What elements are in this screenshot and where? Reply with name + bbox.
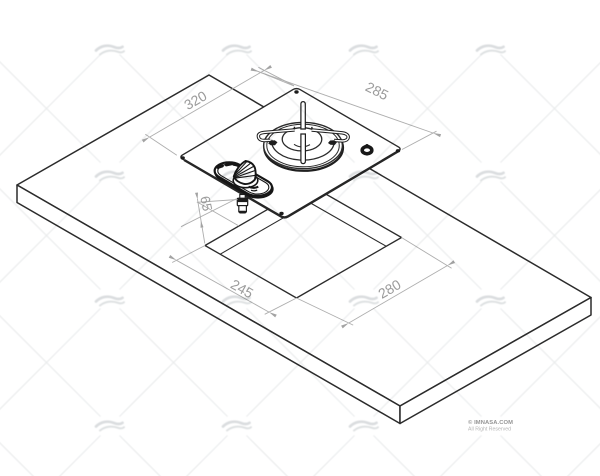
svg-text:© IMNASA.COM: © IMNASA.COM [468,419,513,426]
svg-text:All Right Reserved: All Right Reserved [468,427,511,433]
